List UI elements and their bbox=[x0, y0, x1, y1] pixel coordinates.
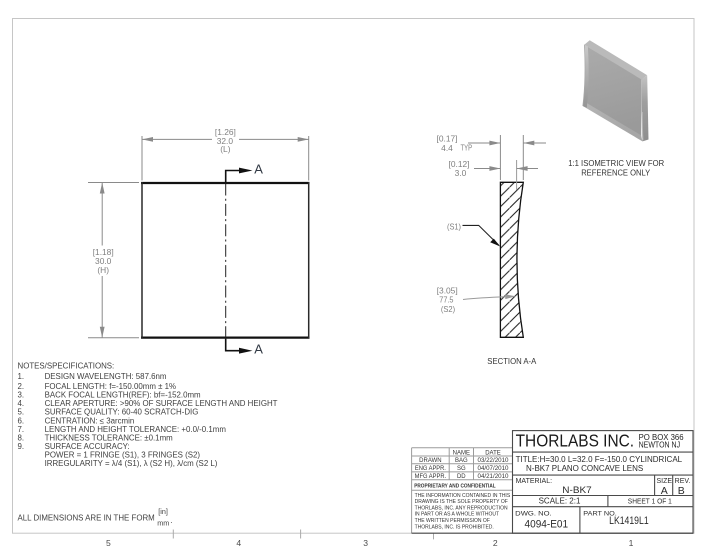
svg-text:04/07/2010: 04/07/2010 bbox=[478, 466, 510, 472]
svg-text:(H): (H) bbox=[97, 265, 109, 275]
svg-text:04/21/2010: 04/21/2010 bbox=[478, 474, 510, 480]
svg-text:MFG APPR.: MFG APPR. bbox=[415, 474, 447, 480]
svg-text:DWG. NO.: DWG. NO. bbox=[515, 510, 552, 517]
svg-text:[in]: [in] bbox=[158, 507, 168, 516]
svg-text:DD: DD bbox=[457, 474, 466, 480]
svg-text:BAG: BAG bbox=[455, 458, 468, 464]
svg-text:REFERENCE ONLY: REFERENCE ONLY bbox=[581, 167, 650, 177]
svg-text:4094-E01: 4094-E01 bbox=[525, 519, 569, 531]
svg-text:NEWTON NJ: NEWTON NJ bbox=[639, 440, 681, 449]
svg-text:(S2): (S2) bbox=[441, 304, 455, 314]
svg-text:IRREGULARITY = λ/4 (S1), λ (S2: IRREGULARITY = λ/4 (S1), λ (S2 H), λ/cm … bbox=[45, 459, 218, 468]
svg-text:DRAWN: DRAWN bbox=[419, 458, 441, 464]
svg-text:IN PART OR AS A WHOLE WITHOUT: IN PART OR AS A WHOLE WITHOUT bbox=[415, 512, 499, 518]
svg-text:3: 3 bbox=[363, 538, 368, 548]
svg-text:03/22/2010: 03/22/2010 bbox=[478, 458, 510, 464]
svg-text:mm: mm bbox=[157, 519, 169, 528]
svg-text:(S1): (S1) bbox=[447, 222, 461, 232]
svg-text:3.0: 3.0 bbox=[455, 168, 467, 178]
svg-text:A: A bbox=[661, 485, 668, 497]
svg-text:TYP: TYP bbox=[461, 143, 473, 153]
svg-text:SHEET 1 OF 1: SHEET 1 OF 1 bbox=[628, 496, 672, 505]
svg-text:N-BK7: N-BK7 bbox=[562, 485, 591, 496]
svg-text:A: A bbox=[254, 162, 263, 177]
svg-text:SECTION A-A: SECTION A-A bbox=[487, 356, 536, 366]
svg-text:NOTES/SPECIFICATIONS:: NOTES/SPECIFICATIONS: bbox=[18, 362, 115, 371]
svg-text:TITLE:H=30.0 L=32.0 F=-150.0 C: TITLE:H=30.0 L=32.0 F=-150.0 CYLINDRICAL bbox=[516, 455, 683, 464]
svg-text:THORLABS, INC. ANY REPRODUCTI: THORLABS, INC. ANY REPRODUCTION bbox=[415, 506, 508, 512]
svg-text:PROPRIETARY AND CONFIDENTIAL: PROPRIETARY AND CONFIDENTIAL bbox=[414, 483, 496, 489]
svg-text:4.4: 4.4 bbox=[441, 143, 453, 153]
svg-text:1: 1 bbox=[629, 538, 634, 548]
svg-text:NAME: NAME bbox=[453, 450, 470, 456]
svg-text:2: 2 bbox=[493, 538, 498, 548]
svg-text:THE WRITTEN PERMISSION OF: THE WRITTEN PERMISSION OF bbox=[415, 518, 490, 524]
svg-text:(L): (L) bbox=[220, 144, 230, 154]
svg-text:5: 5 bbox=[106, 538, 111, 548]
svg-text:LK1419L1: LK1419L1 bbox=[609, 515, 649, 527]
svg-text:MATERIAL:: MATERIAL: bbox=[516, 478, 552, 485]
svg-text:SG: SG bbox=[457, 466, 466, 472]
svg-text:ALL DIMENSIONS ARE IN THE FORM: ALL DIMENSIONS ARE IN THE FORM bbox=[18, 514, 155, 523]
svg-text:A: A bbox=[254, 342, 263, 357]
svg-text:DATE: DATE bbox=[485, 450, 501, 456]
svg-text:B: B bbox=[678, 485, 685, 497]
svg-text:[0.17]: [0.17] bbox=[437, 133, 458, 143]
svg-text:THE INFORMATION CONTAINED IN T: THE INFORMATION CONTAINED IN THIS bbox=[415, 493, 511, 499]
svg-text:9.: 9. bbox=[18, 442, 25, 451]
svg-text:DESIGN WAVELENGTH: 587.6nm: DESIGN WAVELENGTH: 587.6nm bbox=[45, 372, 167, 381]
svg-text:4: 4 bbox=[236, 538, 241, 548]
svg-text:1.: 1. bbox=[18, 372, 25, 381]
svg-text:SCALE: 2:1: SCALE: 2:1 bbox=[539, 497, 581, 506]
svg-text:.: . bbox=[170, 516, 172, 525]
svg-text:THORLABS INC.: THORLABS INC. bbox=[516, 431, 635, 451]
svg-text:DRAWING IS THE SOLE PROPERTY O: DRAWING IS THE SOLE PROPERTY OF bbox=[415, 499, 508, 505]
svg-text:ENG APPR.: ENG APPR. bbox=[415, 466, 446, 472]
svg-text:N-BK7 PLANO CONCAVE LENS: N-BK7 PLANO CONCAVE LENS bbox=[526, 464, 643, 473]
svg-text:THORLABS, INC. IS PROHIBITED.: THORLABS, INC. IS PROHIBITED. bbox=[415, 525, 494, 531]
